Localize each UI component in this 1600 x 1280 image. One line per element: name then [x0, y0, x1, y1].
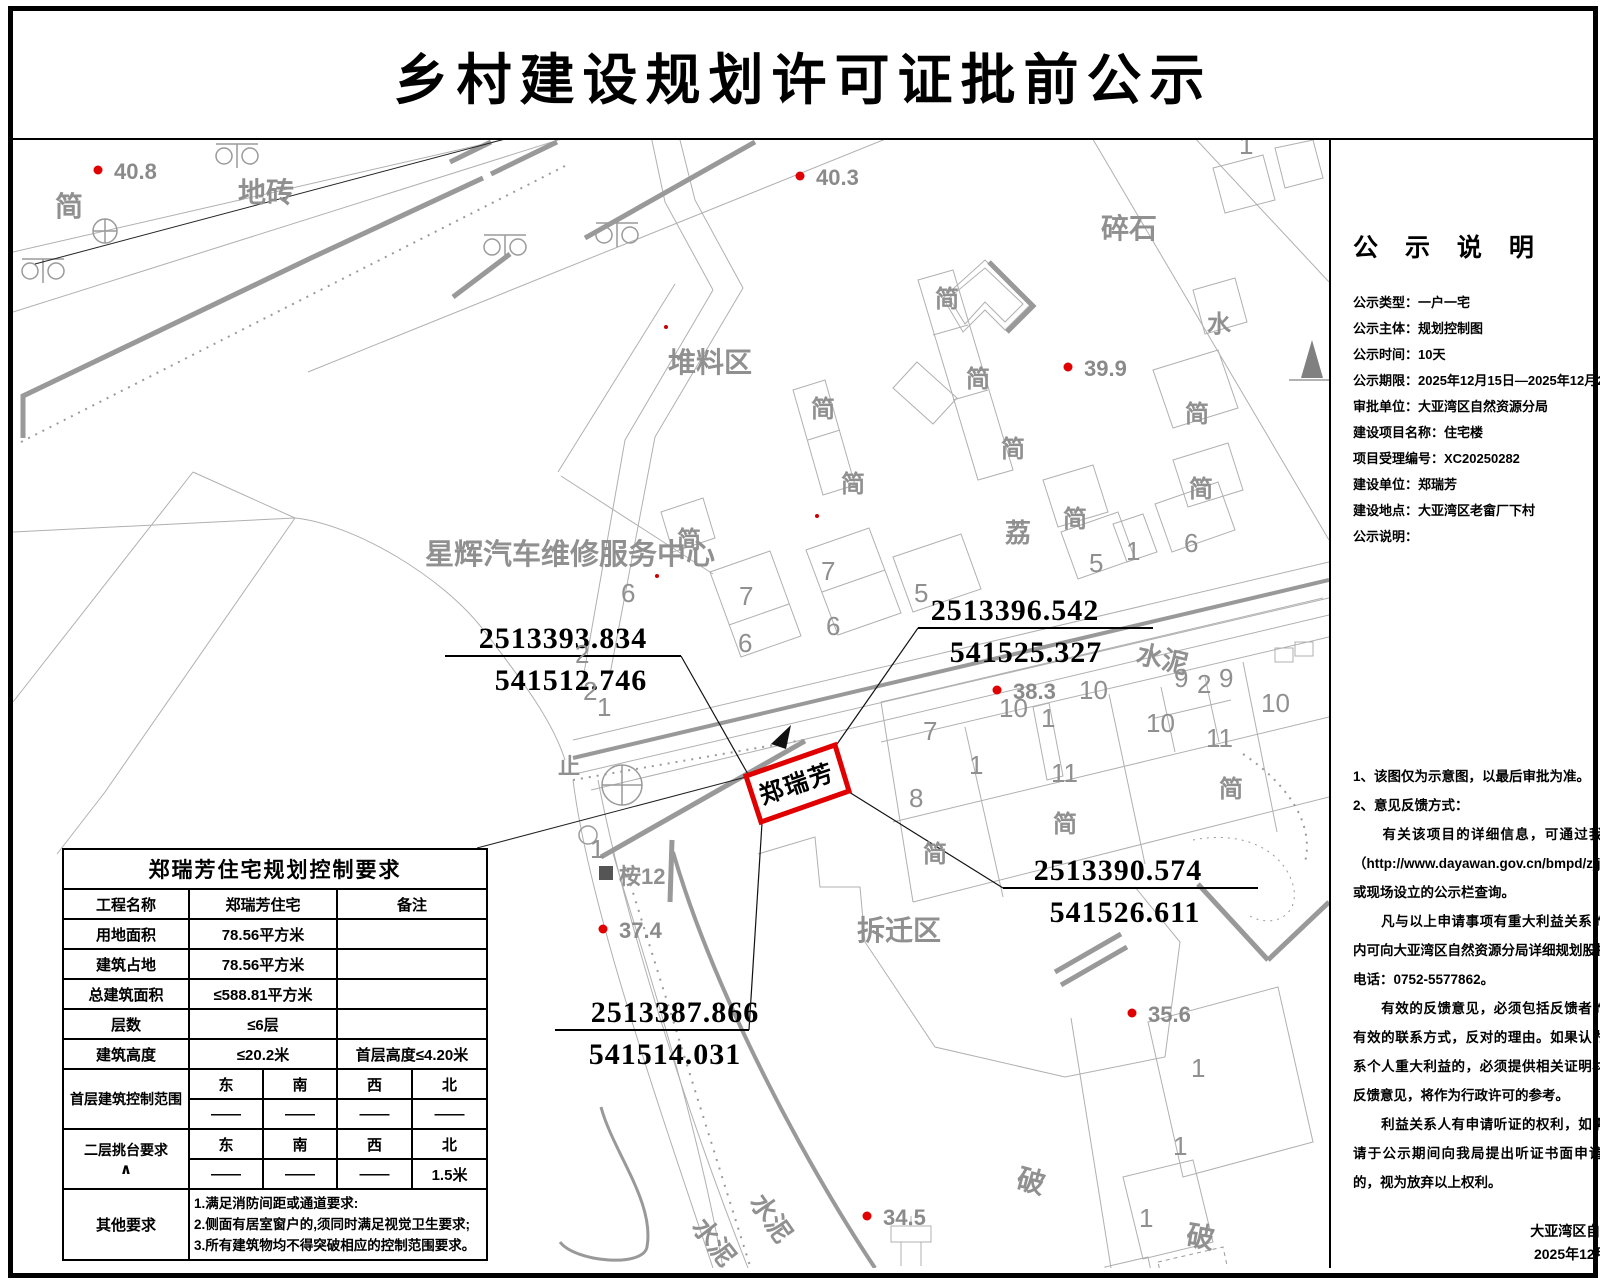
elevation-dot: [599, 925, 608, 934]
map-text: 2513390.574: [1034, 854, 1203, 887]
manhole-icon: [93, 219, 117, 243]
map-text: 水泥: [744, 1188, 798, 1248]
notice-notes: 1、该图仅为示意图，以最后审批为准。2、意见反馈方式： 有关该项目的详细信息，可…: [1353, 762, 1600, 1197]
page-title: 乡村建设规划许可证批前公示: [393, 35, 1212, 115]
table-cell: 其他要求: [63, 1189, 189, 1260]
map-text: 39.9: [1084, 356, 1127, 381]
map-text: 541512.746: [495, 664, 648, 697]
page-header: 乡村建设规划许可证批前公示: [13, 11, 1593, 140]
map-text: 541514.031: [589, 1038, 742, 1071]
lamp-icon: [484, 235, 526, 259]
table-cell: 备注: [337, 889, 487, 919]
map-text: 11: [1206, 723, 1233, 753]
callout-leader-line: [849, 792, 1003, 888]
tree-square-icon: [599, 866, 613, 880]
north-arrow-icon: [1289, 340, 1329, 380]
map-text: 碎石: [1101, 213, 1157, 244]
map-text: 简: [1189, 475, 1213, 503]
map-text: 简: [923, 840, 947, 868]
notice-field: 公示说明：: [1353, 524, 1600, 550]
notice-note-line: 有关该项目的详细信息，可通过我局规划网站（http://www.dayawan.…: [1353, 820, 1600, 907]
map-text: 简: [1063, 505, 1087, 533]
notice-note-line: 1、该图仅为示意图，以最后审批为准。: [1353, 762, 1600, 791]
table-cell: [337, 949, 487, 979]
map-text: 1: [1139, 1203, 1153, 1233]
map-text: 破: [1013, 1163, 1048, 1200]
table-cell: 郑瑞芳住宅: [189, 889, 337, 919]
map-text: 6: [738, 628, 752, 658]
table-cell: 建筑占地: [63, 949, 189, 979]
map-text: 堆料区: [668, 347, 752, 378]
road-walls: [560, 580, 1329, 1268]
notice-note-line: 利益关系人有申请听证的权利，如需申请听证，请于公示期间向我局提出听证书面申请，逾…: [1353, 1110, 1600, 1197]
elevation-dot: [1064, 363, 1073, 372]
map-text: 2513393.834: [479, 622, 648, 655]
map-text: 地砖: [238, 177, 294, 208]
table-cell: 工程名称: [63, 889, 189, 919]
notice-field: 项目受理编号：XC20250282: [1353, 446, 1600, 472]
notice-field: 审批单位：大亚湾区自然资源分局: [1353, 394, 1600, 420]
map-text: 1: [1173, 1131, 1187, 1161]
map-text: 40.8: [114, 159, 157, 184]
map-text: 星辉汽车维修服务中心: [425, 537, 715, 571]
table-cell: 郑瑞芳住宅规划控制要求: [63, 849, 487, 889]
notice-field: 公示时间：10天: [1353, 342, 1600, 368]
page-content: 2513393.834541512.7462513396.542541525.3…: [13, 140, 1593, 1268]
table-cell: 北: [412, 1069, 487, 1099]
map-text: 35.6: [1148, 1002, 1191, 1027]
map-text: 7: [923, 716, 937, 746]
table-cell: ——: [189, 1159, 263, 1189]
notice-note-line: 有效的反馈意见，必须包括反馈者的真实姓名，有效的联系方式，反对的理由。如果认为申…: [1353, 994, 1600, 1110]
table-cell: ——: [263, 1159, 337, 1189]
map-text: 1: [597, 692, 611, 722]
map-text: 541525.327: [950, 636, 1103, 669]
elevation-dot: [796, 172, 805, 181]
control-table-body: 郑瑞芳住宅规划控制要求工程名称郑瑞芳住宅备注用地面积78.56平方米建筑占地78…: [63, 849, 487, 1260]
map-text: 10: [999, 693, 1028, 723]
elevation-dot: [1128, 1009, 1137, 1018]
table-cell: ——: [412, 1099, 487, 1129]
map-text: 破: [1184, 1219, 1217, 1254]
table-cell: 西: [337, 1069, 412, 1099]
map-text: 1: [1191, 1053, 1205, 1083]
map-text: 简: [1001, 435, 1025, 463]
map-text: 7: [739, 581, 753, 611]
map-text: 桉12: [619, 864, 665, 889]
table-cell: 南: [263, 1129, 337, 1159]
map-text: 40.3: [816, 165, 859, 190]
notice-panel: 公 示 说 明 公示类型：一户一宅公示主体：规划控制图公示时间：10天公示期限：…: [1329, 140, 1600, 1268]
map-text: 水泥: [686, 1212, 742, 1268]
map-text: 简: [966, 365, 990, 393]
table-cell: 北: [412, 1129, 487, 1159]
page-frame: 乡村建设规划许可证批前公示: [8, 6, 1598, 1278]
map-text: 简: [841, 470, 865, 498]
table-cell: 总建筑面积: [63, 979, 189, 1009]
table-cell: 西: [337, 1129, 412, 1159]
subject-plot: 郑瑞芳: [746, 745, 849, 822]
map-text: 2: [575, 639, 589, 669]
table-cell: 东: [189, 1069, 263, 1099]
map-text: 2: [1197, 669, 1211, 699]
map-text: 简: [811, 395, 835, 423]
notice-note-line: 电话：0752-5577862。: [1353, 965, 1600, 994]
table-cell: [337, 919, 487, 949]
table-cell: [337, 1009, 487, 1039]
notice-fields: 公示类型：一户一宅公示主体：规划控制图公示时间：10天公示期限：2025年12月…: [1353, 290, 1600, 550]
map-text: 10: [1146, 708, 1175, 738]
map-text: 34.5: [883, 1205, 926, 1230]
table-cell: 层数: [63, 1009, 189, 1039]
table-cell: 首层建筑控制范围: [63, 1069, 189, 1129]
map-text: 2513396.542: [931, 594, 1100, 627]
notice-field: 公示期限：2025年12月15日—2025年12月24日: [1353, 368, 1600, 394]
map-text: 1: [969, 750, 983, 780]
table-cell: [337, 979, 487, 1009]
map-text: 1: [1041, 703, 1055, 733]
leader-arrowhead-icon: [771, 725, 791, 749]
map-text: 11: [1051, 758, 1078, 788]
map-text: 简: [1053, 810, 1077, 838]
map-text: 541526.611: [1050, 896, 1201, 929]
lamp-icon: [596, 223, 638, 247]
notice-heading: 公 示 说 明: [1353, 228, 1600, 264]
control-table: 郑瑞芳住宅规划控制要求工程名称郑瑞芳住宅备注用地面积78.56平方米建筑占地78…: [62, 848, 488, 1261]
map-text: 6: [826, 611, 840, 641]
notice-note-line: 凡与以上申请事项有重大利益关系的，在公示期内可向大亚湾区自然资源分局详细规划股提…: [1353, 907, 1600, 965]
map-text: 拆迁区: [857, 915, 941, 946]
table-cell: ≤6层: [189, 1009, 337, 1039]
map-text: 6: [1184, 528, 1198, 558]
elevation-dot: [863, 1212, 872, 1221]
lamp-icon: [22, 259, 64, 283]
table-cell: 用地面积: [63, 919, 189, 949]
elevation-dot: [94, 166, 103, 175]
table-cell: ≤588.81平方米: [189, 979, 337, 1009]
table-cell: ——: [337, 1099, 412, 1129]
map-text: 1: [1126, 536, 1140, 566]
notice-field: 建设地点：大亚湾区老畲厂下村: [1353, 498, 1600, 524]
table-cell: ——: [263, 1099, 337, 1129]
table-cell: 78.56平方米: [189, 919, 337, 949]
table-cell: 南: [263, 1069, 337, 1099]
table-cell: 1.5米: [412, 1159, 487, 1189]
map-text: 10: [1261, 688, 1290, 718]
map-text: 荔: [1005, 518, 1031, 548]
table-cell: 首层高度≤4.20米: [337, 1039, 487, 1069]
table-cell: 建筑高度: [63, 1039, 189, 1069]
notice-note-line: 2、意见反馈方式：: [1353, 791, 1600, 820]
lamp-icon: [216, 144, 258, 168]
notice-field: 建设项目名称：住宅楼: [1353, 420, 1600, 446]
map-text: 简: [677, 526, 701, 554]
map-text: 简: [55, 190, 83, 222]
map-text: 9: [1219, 663, 1233, 693]
map-text: 2: [583, 676, 597, 706]
map-text: 37.4: [619, 918, 663, 943]
map-text: 1: [590, 834, 604, 864]
notice-signature: 大亚湾区自然资源分局: [1353, 1221, 1600, 1241]
map-text: 简: [1185, 400, 1209, 428]
map-text: 8: [909, 783, 923, 813]
map-text: 2513387.866: [591, 996, 760, 1029]
notice-field: 公示类型：一户一宅: [1353, 290, 1600, 316]
notice-date: 2025年12月15日: [1353, 1241, 1600, 1267]
map-text: 5: [1089, 548, 1103, 578]
table-cell: 二层挑台要求∧: [63, 1129, 189, 1189]
notice-field: 公示主体：规划控制图: [1353, 316, 1600, 342]
table-cell: ——: [337, 1159, 412, 1189]
map-text: 1: [1239, 140, 1253, 160]
callout-leader-line: [681, 656, 749, 776]
map-text: 5: [914, 578, 928, 608]
table-cell: ≤20.2米: [189, 1039, 337, 1069]
table-cell: 78.56平方米: [189, 949, 337, 979]
site-plan-area: 2513393.834541512.7462513396.542541525.3…: [13, 140, 1329, 1268]
callout-leader-line: [835, 628, 918, 747]
map-text: 6: [621, 578, 635, 608]
manhole-icon: [602, 765, 642, 805]
map-text: 7: [821, 556, 835, 586]
map-text: 水: [1207, 311, 1232, 338]
map-text: 10: [1079, 675, 1108, 705]
table-cell: 东: [189, 1129, 263, 1159]
map-text: 止: [558, 754, 580, 779]
map-text: 简: [1219, 775, 1243, 803]
table-cell: 1.满足消防间距或通道要求:2.侧面有居室窗户的,须同时满足视觉卫生要求;3.所…: [189, 1189, 487, 1260]
map-text: 9: [1174, 663, 1188, 693]
notice-field: 建设单位：郑瑞芳: [1353, 472, 1600, 498]
map-text: 简: [935, 285, 959, 313]
table-cell: ——: [189, 1099, 263, 1129]
